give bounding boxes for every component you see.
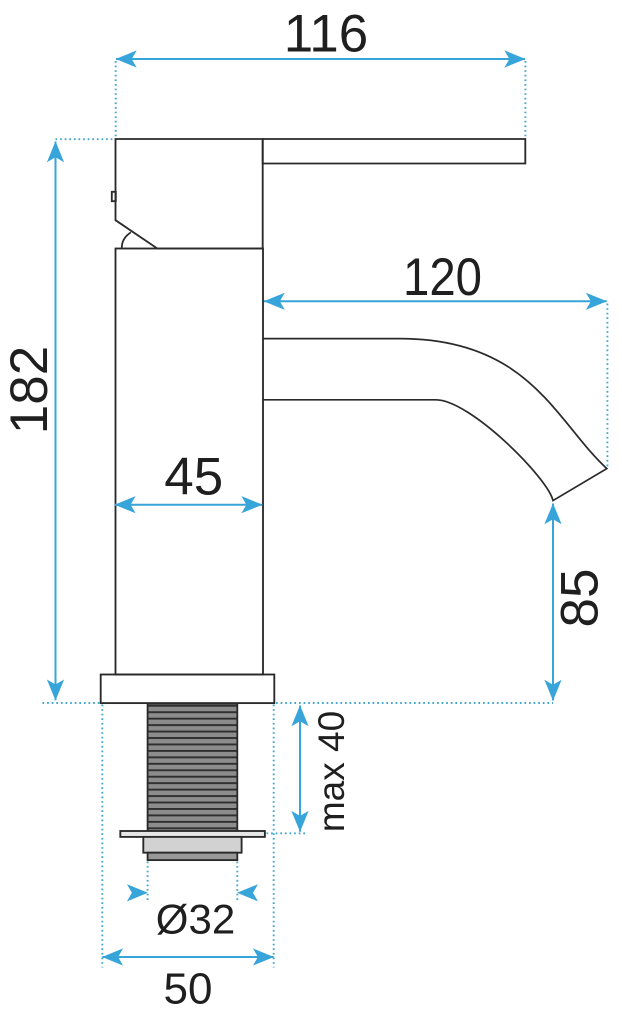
svg-text:182: 182 (0, 346, 59, 434)
svg-text:120: 120 (403, 248, 482, 307)
svg-text:Ø32: Ø32 (156, 895, 235, 942)
svg-text:116: 116 (284, 5, 369, 64)
svg-text:45: 45 (164, 448, 223, 507)
svg-text:85: 85 (551, 569, 610, 628)
svg-text:max 40: max 40 (311, 711, 352, 832)
svg-text:50: 50 (164, 965, 213, 1014)
